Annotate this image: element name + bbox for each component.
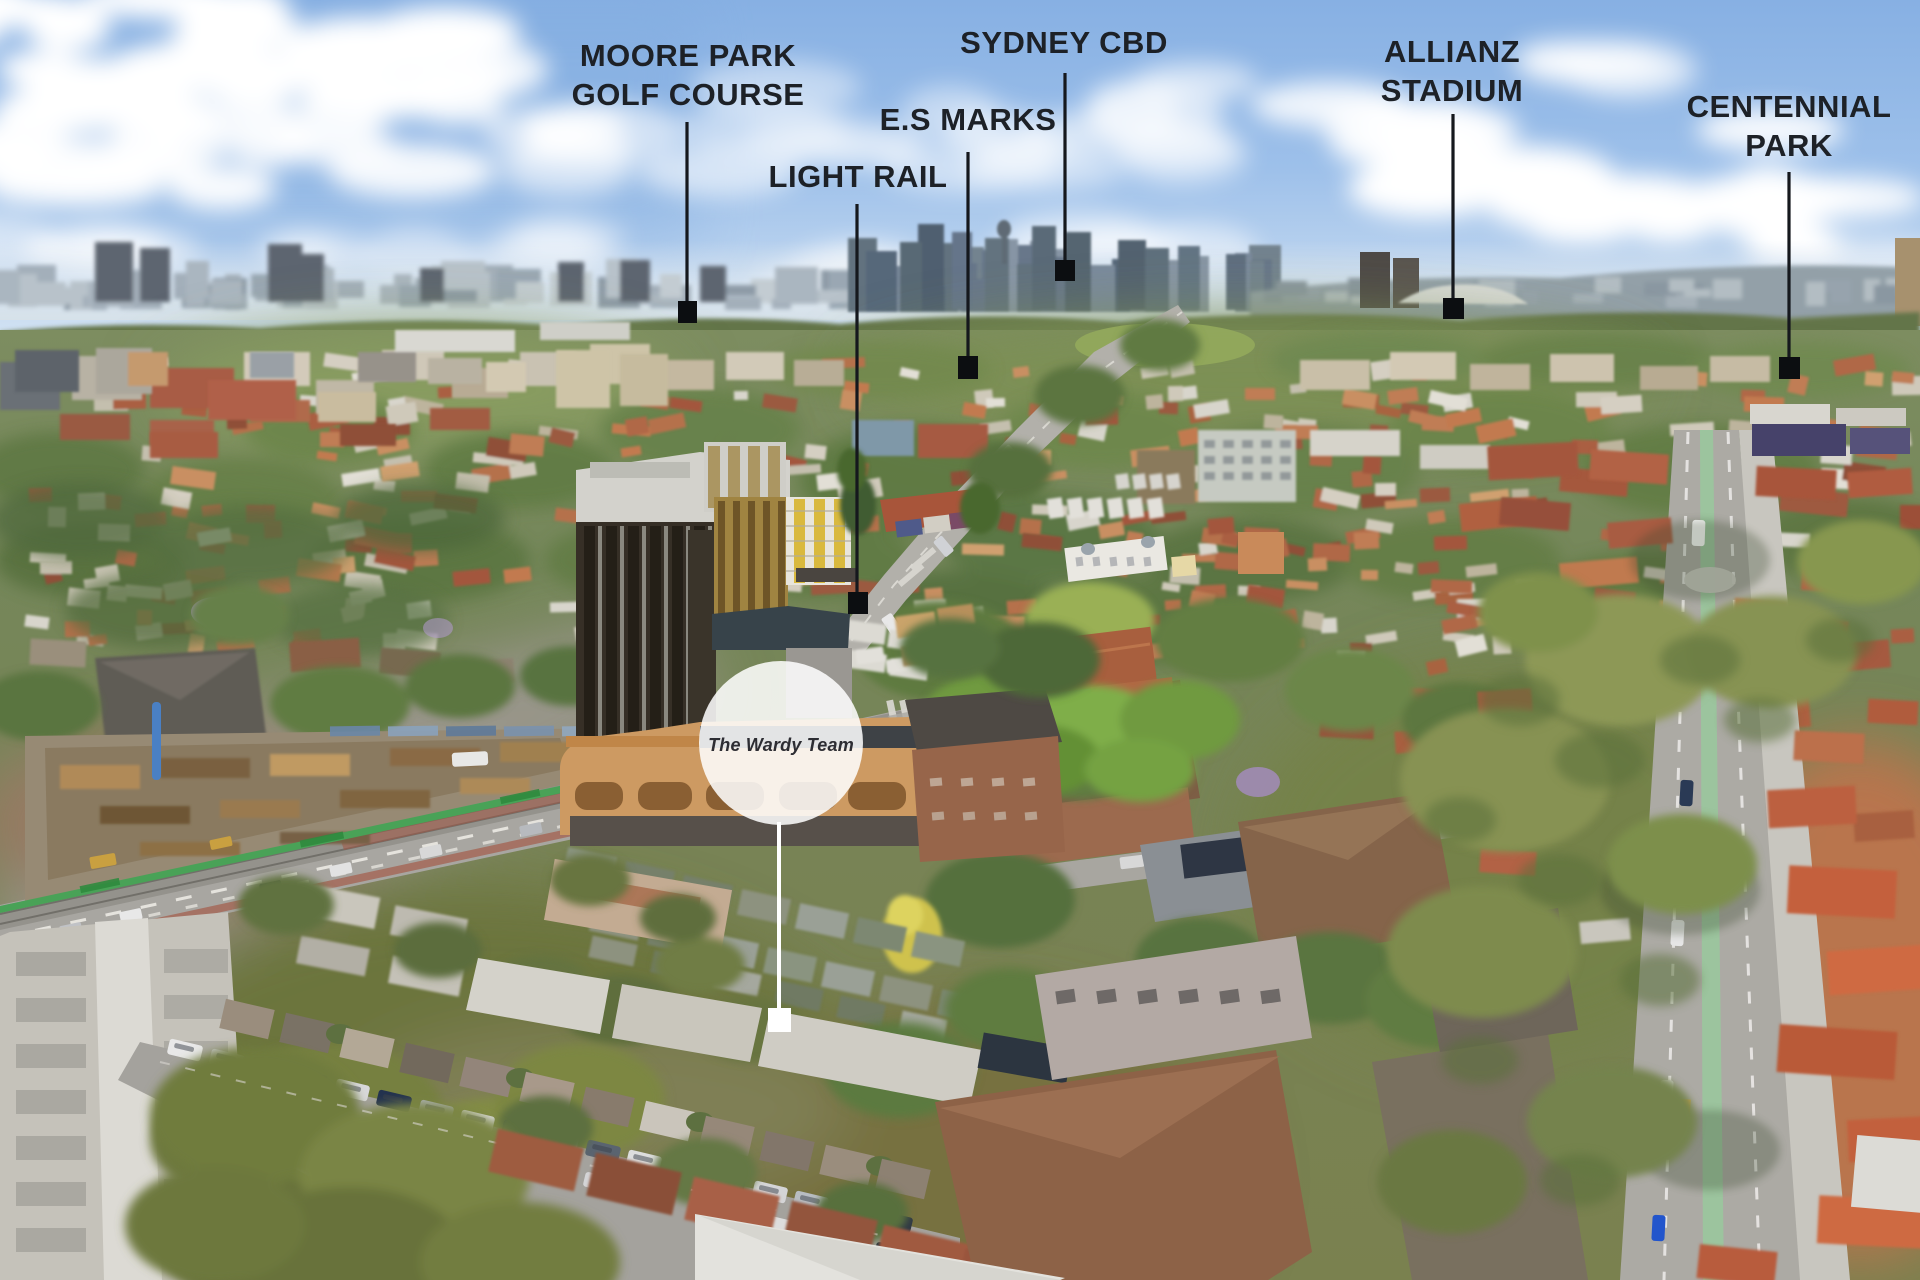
svg-text:ALLIANZ: ALLIANZ xyxy=(1384,34,1520,69)
svg-text:STADIUM: STADIUM xyxy=(1381,73,1523,108)
svg-text:The Wardy Team: The Wardy Team xyxy=(708,735,854,755)
svg-text:E.S MARKS: E.S MARKS xyxy=(880,102,1057,137)
svg-text:GOLF COURSE: GOLF COURSE xyxy=(572,77,805,112)
svg-text:SYDNEY CBD: SYDNEY CBD xyxy=(960,25,1168,60)
svg-text:CENTENNIAL: CENTENNIAL xyxy=(1687,89,1892,124)
svg-text:MOORE PARK: MOORE PARK xyxy=(580,38,796,73)
svg-text:PARK: PARK xyxy=(1745,128,1833,163)
svg-text:LIGHT RAIL: LIGHT RAIL xyxy=(769,159,948,194)
